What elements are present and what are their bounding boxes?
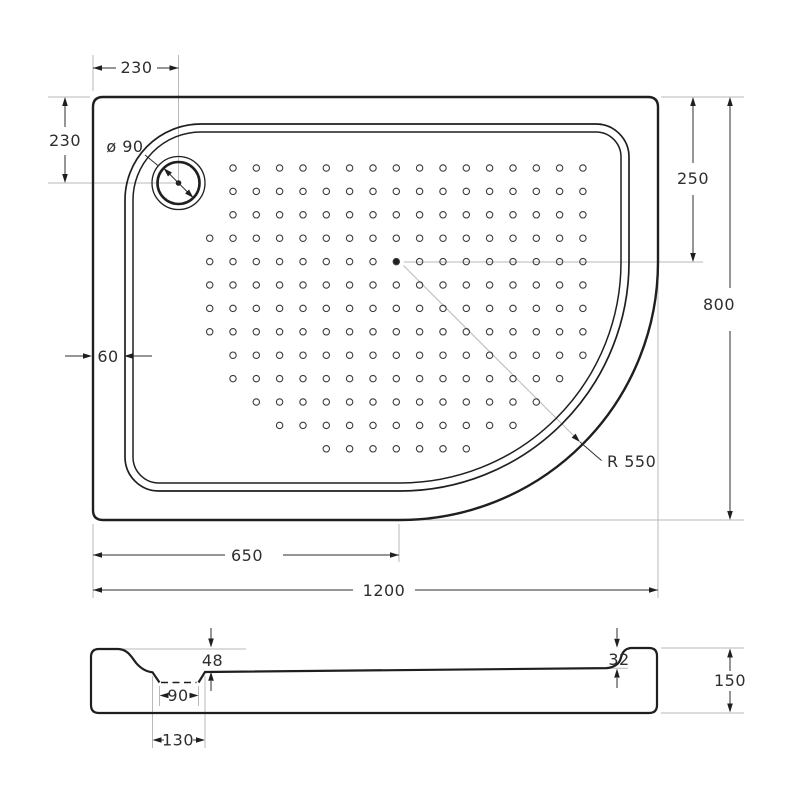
anti-slip-dot [393,446,399,452]
anti-slip-dot [393,235,399,241]
anti-slip-dot [370,375,376,381]
anti-slip-dot [230,258,236,264]
anti-slip-dot [440,305,446,311]
anti-slip-dot [346,212,352,218]
anti-slip-dot [230,282,236,288]
dim-label-overall-height: 800 [703,295,735,314]
anti-slip-dot [253,329,259,335]
anti-slip-dot [416,399,422,405]
anti-slip-dot [253,188,259,194]
tray-outer-outline [93,97,658,520]
drain [145,155,205,210]
anti-slip-dot [580,352,586,358]
anti-slip-dot [370,352,376,358]
anti-slip-dot [463,235,469,241]
anti-slip-dot [370,282,376,288]
anti-slip-dot [486,329,492,335]
anti-slip-dot [463,375,469,381]
anti-slip-dot [556,188,562,194]
anti-slip-dot [300,188,306,194]
anti-slip-dot [580,329,586,335]
anti-slip-dot [370,329,376,335]
anti-slip-dot [486,165,492,171]
anti-slip-dot [346,305,352,311]
anti-slip-dot [207,305,213,311]
anti-slip-dot [393,329,399,335]
anti-slip-dot [440,352,446,358]
anti-slip-dot [370,188,376,194]
dim-label-offset-top: 230 [120,58,152,77]
technical-drawing-page: 230 230 ø 90 250 800 [0,0,800,800]
anti-slip-dot [253,282,259,288]
anti-slip-dot [440,235,446,241]
dim-offset-left: 230 [49,97,81,183]
anti-slip-dot [416,352,422,358]
anti-slip-dot [416,165,422,171]
anti-slip-dot [300,165,306,171]
anti-slip-dot [463,329,469,335]
anti-slip-dot [253,235,259,241]
anti-slip-dot [230,212,236,218]
anti-slip-dot [370,305,376,311]
anti-slip-dot [253,375,259,381]
anti-slip-dot [486,375,492,381]
anti-slip-dot [276,399,282,405]
anti-slip-dot [533,375,539,381]
anti-slip-dot [300,305,306,311]
anti-slip-dot [440,165,446,171]
dim-label-recess-width-outer: 130 [162,731,194,750]
anti-slip-dot [416,329,422,335]
anti-slip-dot [323,375,329,381]
dim-label-depth-left: 48 [202,651,223,670]
dim-profile-height: 150 [714,649,746,713]
anti-slip-dot [276,282,282,288]
dim-label-profile-height: 150 [714,671,746,690]
anti-slip-dot [230,375,236,381]
anti-slip-dot [346,165,352,171]
anti-slip-dot [580,305,586,311]
anti-slip-dot [300,352,306,358]
anti-slip-dot [510,329,516,335]
anti-slip-dot [463,212,469,218]
anti-slip-dot [346,282,352,288]
dim-label-corner-radius: R 550 [607,452,656,471]
anti-slip-dot [346,352,352,358]
anti-slip-dot [463,446,469,452]
anti-slip-dot [207,329,213,335]
anti-slip-dot [440,375,446,381]
anti-slip-dot [253,399,259,405]
anti-slip-dot [230,188,236,194]
anti-slip-dot [323,165,329,171]
anti-slip-dot [230,165,236,171]
anti-slip-dot [276,165,282,171]
anti-slip-dot [440,212,446,218]
anti-slip-dot [207,282,213,288]
anti-slip-dot [533,165,539,171]
dim-offset-top: 230 [93,58,179,77]
anti-slip-dot [486,352,492,358]
anti-slip-dot [393,305,399,311]
anti-slip-dot [346,446,352,452]
anti-slip-dot [370,165,376,171]
anti-slip-dot [533,352,539,358]
anti-slip-dot [230,352,236,358]
dim-overall-width: 1200 [93,581,658,600]
anti-slip-dot [533,235,539,241]
anti-slip-dot [510,352,516,358]
anti-slip-dot [300,375,306,381]
anti-slip-dot [346,258,352,264]
anti-slip-dot [230,235,236,241]
anti-slip-dot [463,422,469,428]
anti-slip-dot [346,375,352,381]
anti-slip-dot [486,235,492,241]
anti-slip-dot [323,258,329,264]
anti-slip-dot [440,329,446,335]
anti-slip-dot [300,399,306,405]
anti-slip-dot [323,212,329,218]
anti-slip-dot [463,399,469,405]
anti-slip-dot [416,422,422,428]
dim-depth-right: 32 [608,628,629,688]
extension-lines-top-view [48,55,744,598]
anti-slip-dot [533,282,539,288]
anti-slip-dot [463,282,469,288]
anti-slip-dot [346,422,352,428]
anti-slip-dot [230,329,236,335]
anti-slip-dot [346,329,352,335]
drain-label-leader [145,155,159,166]
dim-recess-width-inner: 90 [160,686,199,705]
dim-label-offset-left: 230 [49,131,81,150]
dim-label-center-from-left: 650 [231,546,263,565]
dim-label-rim-width: 60 [97,347,118,366]
inner-rim-outer-line [125,124,629,491]
dim-center-from-left: 650 [93,546,399,565]
profile-view: 48 32 90 130 1 [91,628,746,750]
shower-tray-drawing: 230 230 ø 90 250 800 [0,0,800,800]
anti-slip-dot [323,399,329,405]
anti-slip-dot [253,352,259,358]
anti-slip-dot [230,305,236,311]
anti-slip-dot [370,258,376,264]
anti-slip-dot [556,305,562,311]
anti-slip-dot [510,399,516,405]
anti-slip-dot [370,235,376,241]
anti-slip-dot [253,258,259,264]
anti-slip-dot [533,212,539,218]
anti-slip-dot [370,399,376,405]
anti-slip-dot [416,446,422,452]
anti-slip-dot [370,212,376,218]
anti-slip-dot [300,329,306,335]
anti-slip-dot [580,235,586,241]
dim-recess-width-outer: 130 [153,731,206,750]
anti-slip-dot [580,165,586,171]
anti-slip-dot [276,305,282,311]
anti-slip-dot [486,188,492,194]
anti-slip-dot [300,212,306,218]
anti-slip-dot [323,305,329,311]
anti-slip-dot [440,446,446,452]
anti-slip-dot [346,188,352,194]
anti-slip-dot [440,399,446,405]
anti-slip-dot [580,282,586,288]
anti-slip-dot [533,329,539,335]
anti-slip-dot [276,329,282,335]
anti-slip-dot [556,165,562,171]
anti-slip-dot [207,235,213,241]
anti-slip-dot [556,352,562,358]
anti-slip-dot [346,235,352,241]
anti-slip-dot [510,305,516,311]
dim-label-center-from-top: 250 [677,169,709,188]
dim-rim-width: 60 [65,347,152,366]
anti-slip-dot [510,235,516,241]
anti-slip-dot [346,399,352,405]
anti-slip-dot [510,165,516,171]
dim-label-recess-width-inner: 90 [167,686,188,705]
anti-slip-dot [556,235,562,241]
drain-diameter-label: ø 90 [106,137,143,156]
anti-slip-dot [393,165,399,171]
anti-slip-dot [300,258,306,264]
anti-slip-dot [300,235,306,241]
anti-slip-dot [510,212,516,218]
anti-slip-dot [556,329,562,335]
anti-slip-dot [207,258,213,264]
dim-label-overall-width: 1200 [363,581,406,600]
anti-slip-dot [276,352,282,358]
anti-slip-dot [463,352,469,358]
anti-slip-dot [463,165,469,171]
anti-slip-dot [510,422,516,428]
anti-slip-dot [323,235,329,241]
anti-slip-dot [486,212,492,218]
anti-slip-dot [440,188,446,194]
anti-slip-dot [370,446,376,452]
anti-slip-dot [556,282,562,288]
anti-slip-dot-pattern [207,165,587,452]
anti-slip-dot [370,422,376,428]
anti-slip-dot [323,352,329,358]
radius-center-dot [393,258,399,264]
anti-slip-dot [393,188,399,194]
anti-slip-dot [463,305,469,311]
anti-slip-dot [300,282,306,288]
anti-slip-dot [533,399,539,405]
anti-slip-dot [276,212,282,218]
anti-slip-dot [393,399,399,405]
anti-slip-dot [416,212,422,218]
anti-slip-dot [556,212,562,218]
anti-slip-dot [533,305,539,311]
anti-slip-dot [580,188,586,194]
anti-slip-dot [276,258,282,264]
anti-slip-dot [556,375,562,381]
anti-slip-dot [323,188,329,194]
anti-slip-dot [440,282,446,288]
anti-slip-dot [393,375,399,381]
anti-slip-dot [323,329,329,335]
anti-slip-dot [393,282,399,288]
anti-slip-dot [510,375,516,381]
anti-slip-dot [323,422,329,428]
anti-slip-dot [416,375,422,381]
anti-slip-dot [276,235,282,241]
anti-slip-dot [253,305,259,311]
dim-overall-height: 800 [703,97,735,520]
anti-slip-dot [276,188,282,194]
anti-slip-dot [463,188,469,194]
anti-slip-dot [416,188,422,194]
anti-slip-dot [253,212,259,218]
anti-slip-dot [393,352,399,358]
anti-slip-dot [486,305,492,311]
anti-slip-dot [300,422,306,428]
anti-slip-dot [323,282,329,288]
anti-slip-dot [486,399,492,405]
anti-slip-dot [510,282,516,288]
anti-slip-dot [393,422,399,428]
anti-slip-dot [440,422,446,428]
anti-slip-dot [580,212,586,218]
dim-label-depth-right: 32 [608,650,629,669]
anti-slip-dot [276,375,282,381]
dim-corner-radius: R 550 [572,434,657,471]
anti-slip-dot [486,422,492,428]
anti-slip-dot [416,282,422,288]
anti-slip-dot [486,282,492,288]
anti-slip-dot [416,235,422,241]
top-view: 230 230 ø 90 250 800 [48,55,744,600]
anti-slip-dot [416,305,422,311]
anti-slip-dot [533,188,539,194]
anti-slip-dot [510,188,516,194]
dim-center-from-top: 250 [677,97,709,262]
anti-slip-dot [276,422,282,428]
anti-slip-dot [393,212,399,218]
anti-slip-dot [253,165,259,171]
anti-slip-dot [323,446,329,452]
